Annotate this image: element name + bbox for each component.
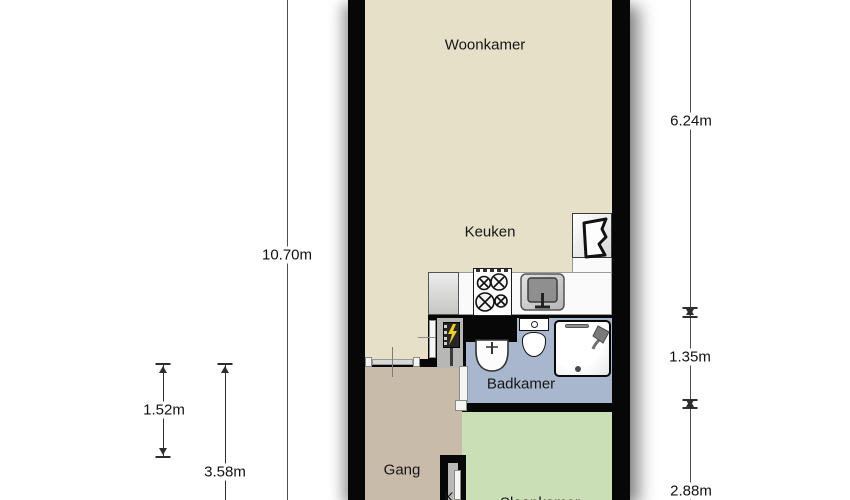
wall-opening-mark bbox=[418, 337, 436, 338]
toilet-icon bbox=[519, 318, 549, 331]
room-slaapkamer bbox=[462, 412, 612, 500]
dimension-arrow bbox=[159, 366, 167, 373]
kitchen-sink-icon bbox=[520, 273, 565, 312]
washbasin-icon bbox=[475, 339, 509, 373]
floorplan: Woonkamer Keuken Badkamer Gang Slaapkame… bbox=[348, 0, 630, 500]
dimension-arrow bbox=[159, 448, 167, 455]
room-label-badkamer: Badkamer bbox=[487, 376, 555, 393]
dimension-arrow bbox=[686, 400, 694, 407]
shower-head bbox=[590, 323, 612, 351]
dimension-label-bedroom-depth: 2.88m bbox=[667, 483, 715, 500]
floorplan-canvas: 10.70m 1.52m 3.58m 6.24m 1.35m 2.88m bbox=[0, 0, 850, 500]
door-post bbox=[365, 357, 372, 367]
door-swing-mark bbox=[392, 347, 393, 377]
dimension-tick bbox=[683, 407, 698, 409]
door-post bbox=[413, 357, 420, 367]
room-label-keuken: Keuken bbox=[465, 224, 516, 241]
stove-icon bbox=[473, 268, 512, 316]
dimension-label-living-depth: 6.24m bbox=[667, 113, 715, 130]
meter-pipe bbox=[450, 348, 453, 366]
closet-door bbox=[454, 470, 461, 500]
water-heater-icon bbox=[572, 213, 612, 258]
dimension-line-right bbox=[690, 0, 691, 500]
toilet-flush-button bbox=[531, 321, 538, 328]
lightning-bolt-icon bbox=[448, 324, 457, 345]
shower-icon bbox=[554, 320, 611, 377]
room-label-gang: Gang bbox=[384, 462, 421, 479]
bedroom-door-post bbox=[455, 400, 467, 411]
meter-cupboard-door bbox=[429, 320, 436, 358]
electrical-panel-icon bbox=[443, 322, 460, 348]
shower-drain bbox=[575, 366, 581, 372]
room-label-kast: K bbox=[444, 489, 453, 500]
dimension-tick bbox=[156, 456, 171, 458]
dimension-tick bbox=[156, 363, 171, 365]
dimension-label-bath-depth: 1.35m bbox=[666, 349, 714, 366]
dimension-arrow bbox=[221, 366, 229, 373]
dimension-label-total-height: 10.70m bbox=[259, 247, 315, 264]
kitchen-cabinet bbox=[428, 272, 459, 315]
room-label-woonkamer: Woonkamer bbox=[445, 37, 526, 54]
shower-handle-bar bbox=[565, 324, 589, 328]
dimension-tick bbox=[218, 363, 233, 365]
dimension-tick bbox=[683, 316, 698, 318]
dimension-label-hall-upper: 1.52m bbox=[140, 402, 188, 419]
room-label-slaapkamer: Slaapkamer bbox=[500, 495, 580, 500]
bathroom-door bbox=[459, 366, 468, 402]
dimension-label-hall-lower: 3.58m bbox=[201, 464, 249, 481]
dimension-arrow bbox=[686, 309, 694, 316]
